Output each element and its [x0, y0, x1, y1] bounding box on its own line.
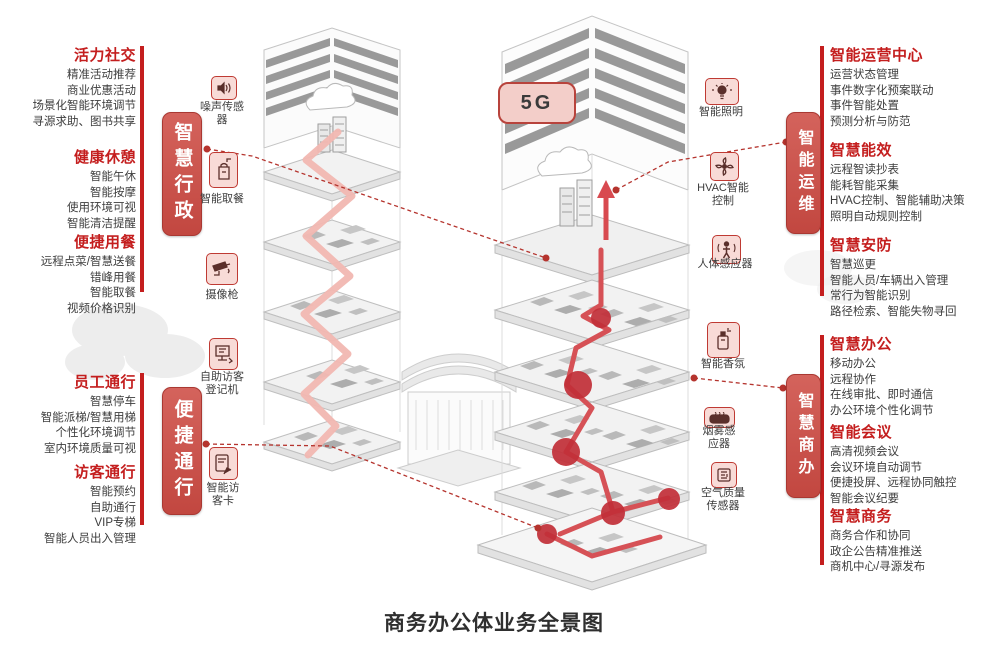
- page-title: 商务办公体业务全景图: [0, 607, 988, 637]
- section-item: 智慧停车: [0, 395, 136, 411]
- section-item: 商务合作和协同: [830, 529, 986, 545]
- section-item: 智能清洁提醒: [0, 217, 136, 233]
- section-item: 照明自动规则控制: [830, 210, 986, 226]
- section-item: 智能按摩: [0, 186, 136, 202]
- section-visitor-access: 访客通行 智能预约 自助通行 VIP专梯 智能人员出入管理: [0, 461, 136, 547]
- device-label: 智能香氛: [696, 358, 750, 371]
- section-smart-energy: 智慧能效 远程智读抄表 能耗智能采集 HVAC控制、智能辅助决策 照明自动规则控…: [830, 139, 986, 225]
- noise-sensor-icon: [211, 76, 237, 100]
- hvac-control-icon: [710, 152, 739, 181]
- section-item: 智能人员/车辆出入管理: [830, 274, 986, 290]
- cctv-camera-icon: [206, 253, 238, 285]
- section-item: 智能人员出入管理: [0, 532, 136, 548]
- section-heading: 智慧能效: [830, 139, 986, 160]
- meal-pickup-icon: [209, 152, 238, 188]
- visitor-kiosk-icon: [209, 338, 238, 370]
- section-heading: 智慧办公: [830, 333, 986, 354]
- section-item: 政企公告精准推送: [830, 545, 986, 561]
- section-item: 智能取餐: [0, 286, 136, 302]
- section-item: 智慧巡更: [830, 258, 986, 274]
- section-heading: 智能运营中心: [830, 44, 986, 65]
- section-item: 办公环境个性化调节: [830, 404, 986, 420]
- section-item: 远程智读抄表: [830, 163, 986, 179]
- left-section-bar-bottom: [140, 373, 144, 525]
- section-item: 运营状态管理: [830, 68, 986, 84]
- section-convenient-dining: 便捷用餐 远程点菜/智慧送餐 错峰用餐 智能取餐 视频价格识别: [0, 231, 136, 317]
- pill-smart-operations: 智能运维: [786, 112, 821, 234]
- device-label: 摄像枪: [200, 289, 244, 302]
- pill-smart-administration: 智慧行政: [162, 112, 202, 236]
- section-item: 能耗智能采集: [830, 179, 986, 195]
- section-item: 预测分析与防范: [830, 115, 986, 131]
- left-tower: [264, 28, 400, 471]
- device-label: 智能取餐: [198, 193, 246, 206]
- section-item: 错峰用餐: [0, 271, 136, 287]
- section-item: 智能午休: [0, 170, 136, 186]
- section-item: 室内环境质量可视: [0, 442, 136, 458]
- section-item: 商机中心/寻源发布: [830, 560, 986, 576]
- device-label: 人体感应器: [692, 258, 758, 271]
- device-label: 烟雾感应器: [698, 425, 740, 451]
- section-item: 智能派梯/智慧用梯: [0, 411, 136, 427]
- section-heading: 访客通行: [0, 461, 136, 482]
- section-smart-meeting: 智能会议 高清视频会议 会议环境自动调节 便捷投屏、远程协同触控 智能会议纪要: [830, 421, 986, 507]
- section-item: 远程点菜/智慧送餐: [0, 255, 136, 271]
- section-item: 智能预约: [0, 485, 136, 501]
- section-item: VIP专梯: [0, 516, 136, 532]
- section-item: 事件智能处置: [830, 99, 986, 115]
- section-item: 路径检索、智能失物寻回: [830, 305, 986, 321]
- section-item: 寻源求助、图书共享: [0, 115, 136, 131]
- section-heading: 活力社交: [0, 44, 136, 65]
- section-heading: 智慧安防: [830, 234, 986, 255]
- pill-smart-business: 智慧商办: [786, 374, 821, 498]
- badge-5g: 5G: [498, 82, 576, 124]
- device-label: 空气质量传感器: [697, 487, 749, 513]
- section-item: 使用环境可视: [0, 201, 136, 217]
- section-employee-access: 员工通行 智慧停车 智能派梯/智慧用梯 个性化环境调节 室内环境质量可视: [0, 371, 136, 457]
- section-healthy-rest: 健康休憩 智能午休 智能按摩 使用环境可视 智能清洁提醒: [0, 146, 136, 232]
- device-label: 智能访客卡: [203, 482, 243, 508]
- section-smart-commerce: 智慧商务 商务合作和协同 政企公告精准推送 商机中心/寻源发布: [830, 505, 986, 576]
- left-section-bar-top: [140, 46, 144, 292]
- section-heading: 健康休憩: [0, 146, 136, 167]
- device-label: 智能照明: [694, 106, 748, 119]
- section-heading: 便捷用餐: [0, 231, 136, 252]
- section-heading: 智能会议: [830, 421, 986, 442]
- section-smart-security: 智慧安防 智慧巡更 智能人员/车辆出入管理 常行为智能识别 路径检索、智能失物寻…: [830, 234, 986, 320]
- section-item: 精准活动推荐: [0, 68, 136, 84]
- section-item: 移动办公: [830, 357, 986, 373]
- smart-lighting-icon: [705, 78, 739, 105]
- section-heading: 智慧商务: [830, 505, 986, 526]
- section-item: 常行为智能识别: [830, 289, 986, 305]
- section-item: 在线审批、即时通信: [830, 388, 986, 404]
- section-item: 视频价格识别: [0, 302, 136, 318]
- device-label: 噪声传感器: [198, 101, 246, 127]
- section-item: 场景化智能环境调节: [0, 99, 136, 115]
- section-item: 事件数字化预案联动: [830, 84, 986, 100]
- section-item: 会议环境自动调节: [830, 461, 986, 477]
- section-item: 远程协作: [830, 373, 986, 389]
- section-item: 个性化环境调节: [0, 426, 136, 442]
- section-item: 商业优惠活动: [0, 84, 136, 100]
- section-item: 高清视频会议: [830, 445, 986, 461]
- section-item: 便捷投屏、远程协同触控: [830, 476, 986, 492]
- section-heading: 员工通行: [0, 371, 136, 392]
- fragrance-icon: [707, 322, 740, 358]
- section-item: HVAC控制、智能辅助决策: [830, 194, 986, 210]
- section-item: 自助通行: [0, 501, 136, 517]
- section-smart-office: 智慧办公 移动办公 远程协作 在线审批、即时通信 办公环境个性化调节: [830, 333, 986, 419]
- section-smart-operations-center: 智能运营中心 运营状态管理 事件数字化预案联动 事件智能处置 预测分析与防范: [830, 44, 986, 130]
- air-quality-sensor-icon: [711, 462, 737, 488]
- section-vibrant-social: 活力社交 精准活动推荐 商业优惠活动 场景化智能环境调节 寻源求助、图书共享: [0, 44, 136, 130]
- device-label: 自助访客登记机: [198, 371, 246, 397]
- visitor-card-icon: [209, 447, 238, 480]
- pill-convenient-access: 便捷通行: [162, 387, 202, 515]
- infographic-canvas: 活力社交 精准活动推荐 商业优惠活动 场景化智能环境调节 寻源求助、图书共享 健…: [0, 0, 988, 655]
- device-label: HVAC智能控制: [696, 182, 750, 208]
